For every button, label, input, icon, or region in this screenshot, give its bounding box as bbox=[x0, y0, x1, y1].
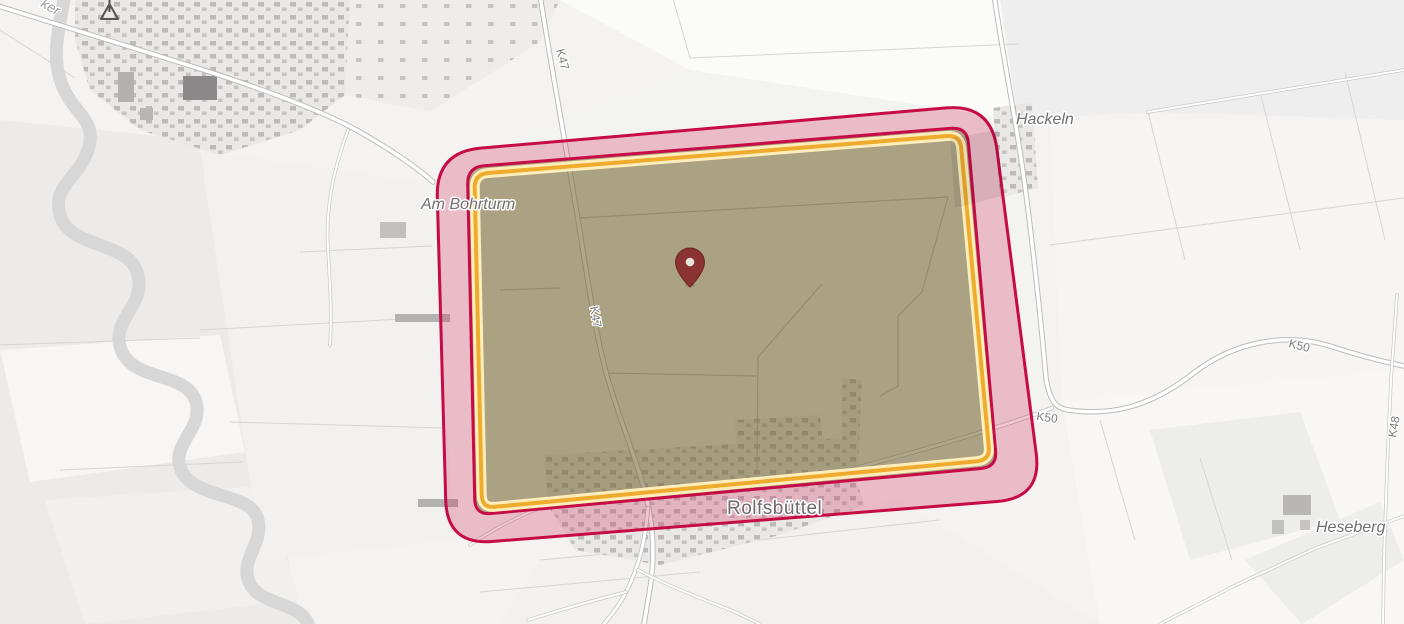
flight-area-polygon[interactable] bbox=[468, 128, 996, 513]
hackeln-built-up-shading bbox=[950, 130, 1002, 208]
place-label-hackeln: Hackeln bbox=[1016, 111, 1074, 128]
road-label-k50-west: K50 bbox=[1036, 409, 1059, 426]
map-canvas[interactable]: ker K47 K47 K50 K50 K48 Hackeln Am Bohrt… bbox=[0, 0, 1404, 624]
place-label-am-bohrturm: Am Bohrturm bbox=[420, 196, 515, 213]
place-label-rolfsbuettel: Rolfsbüttel bbox=[727, 498, 822, 519]
zone-overlays bbox=[437, 108, 1037, 542]
place-label-heseberg: Heseberg bbox=[1316, 519, 1385, 536]
